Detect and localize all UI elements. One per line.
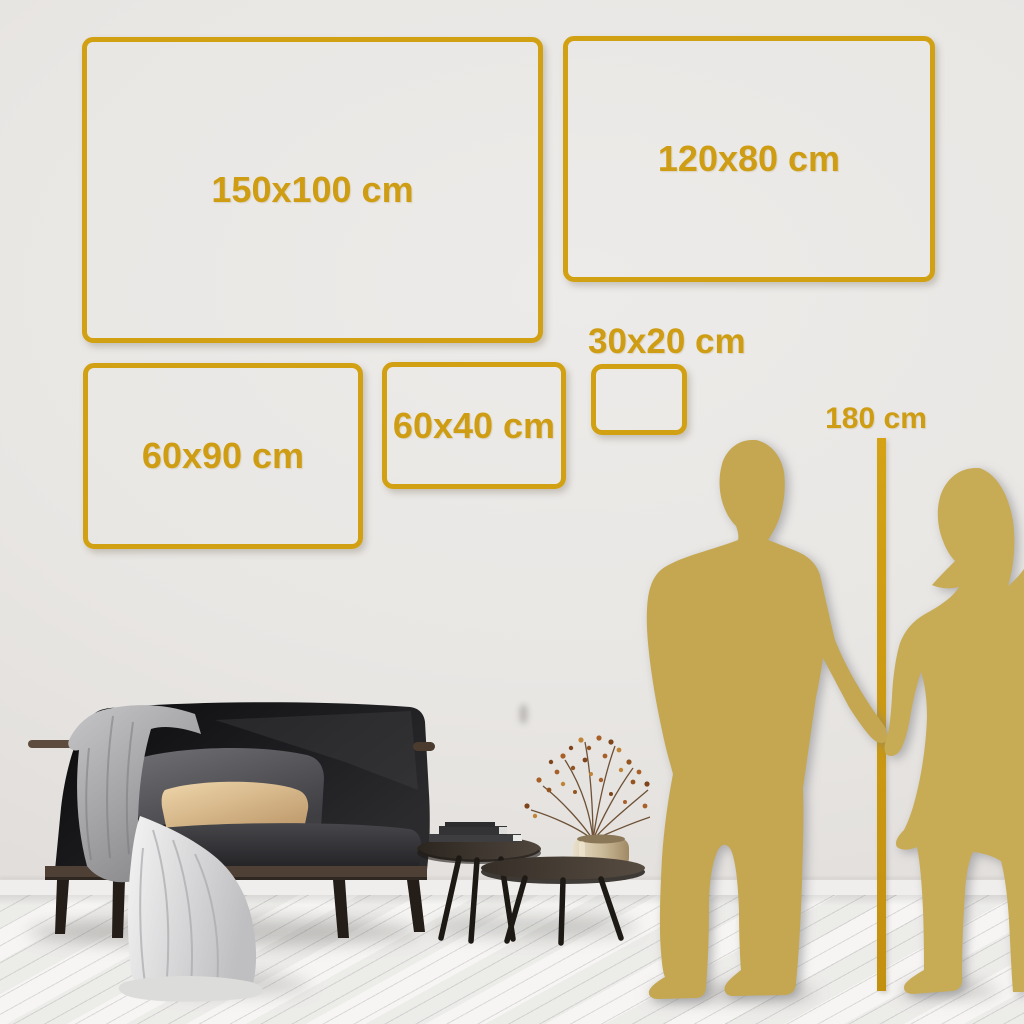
book-pages <box>499 827 507 834</box>
woman-silhouette <box>885 468 1024 994</box>
book-bottom <box>429 834 521 842</box>
table-top-right <box>481 857 645 880</box>
coffee-tables <box>415 728 650 948</box>
table-legs-right <box>507 878 621 943</box>
book-top <box>439 826 507 835</box>
book-pages <box>513 835 522 841</box>
book-small <box>445 822 495 827</box>
size-guide-scene: 150x100 cm 120x80 cm 60x90 cm 60x40 cm 3… <box>0 0 1024 1024</box>
man-silhouette <box>647 440 888 999</box>
